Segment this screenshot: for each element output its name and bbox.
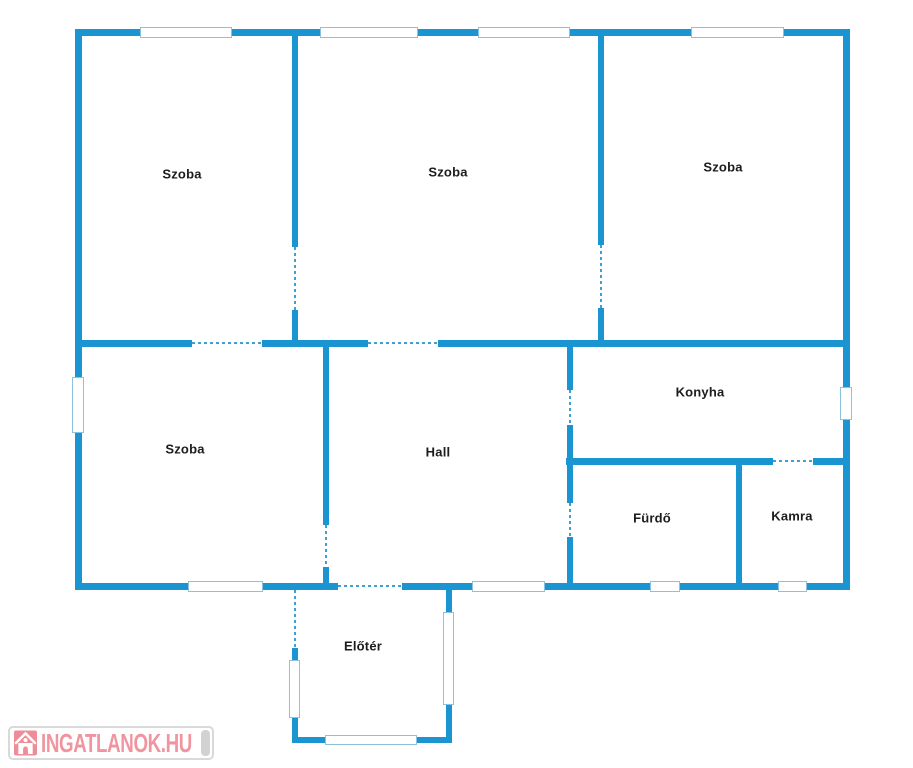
door-opening [569,390,571,425]
wall-segment [598,36,604,245]
room-label-szoba: Szoba [703,160,742,175]
wall-segment [323,567,329,584]
window [472,581,545,592]
room-label-kamra: Kamra [771,509,812,524]
window [691,27,784,38]
window [72,377,84,433]
window [325,735,417,745]
door-opening [773,460,813,462]
window [840,387,852,420]
window [778,581,807,592]
wall-segment [736,458,742,584]
door-opening [368,342,438,344]
door-opening [294,247,296,310]
wall-segment [262,340,368,347]
wall-segment [567,537,573,584]
window [478,27,570,38]
door-opening [600,245,602,308]
window [320,27,418,38]
door-opening [338,585,402,587]
window [140,27,232,38]
wall-segment [598,308,604,341]
watermark-ingatlanok: INGATLANOK.HU [8,726,214,760]
watermark-text: INGATLANOK.HU [41,730,192,756]
wall-segment [813,458,850,465]
room-label-konyha: Konyha [676,385,725,400]
wall-segment [323,347,329,525]
room-label-hall: Hall [426,445,451,460]
room-label-szoba: Szoba [165,442,204,457]
window [650,581,680,592]
watermark-pill [201,730,210,756]
wall-segment [567,345,573,390]
room-label-eloter: Előtér [344,639,382,654]
wall-segment [438,340,850,347]
wall-segment [292,36,298,247]
floor-plan: SzobaSzobaSzobaSzobaHallKonyhaFürdőKamra… [0,0,913,768]
wall-segment [292,310,298,341]
door-opening [569,503,571,537]
wall-segment [75,340,192,347]
wall-segment [843,29,850,590]
window [289,660,300,718]
window [188,581,263,592]
room-label-szoba: Szoba [428,165,467,180]
door-opening [192,342,262,344]
room-label-furdo: Fürdő [633,511,671,526]
house-logo-icon [14,730,37,756]
door-opening [294,590,296,648]
wall-segment [567,425,573,503]
window [443,612,454,705]
wall-segment [75,29,82,590]
door-opening [325,525,327,567]
room-label-szoba: Szoba [162,167,201,182]
